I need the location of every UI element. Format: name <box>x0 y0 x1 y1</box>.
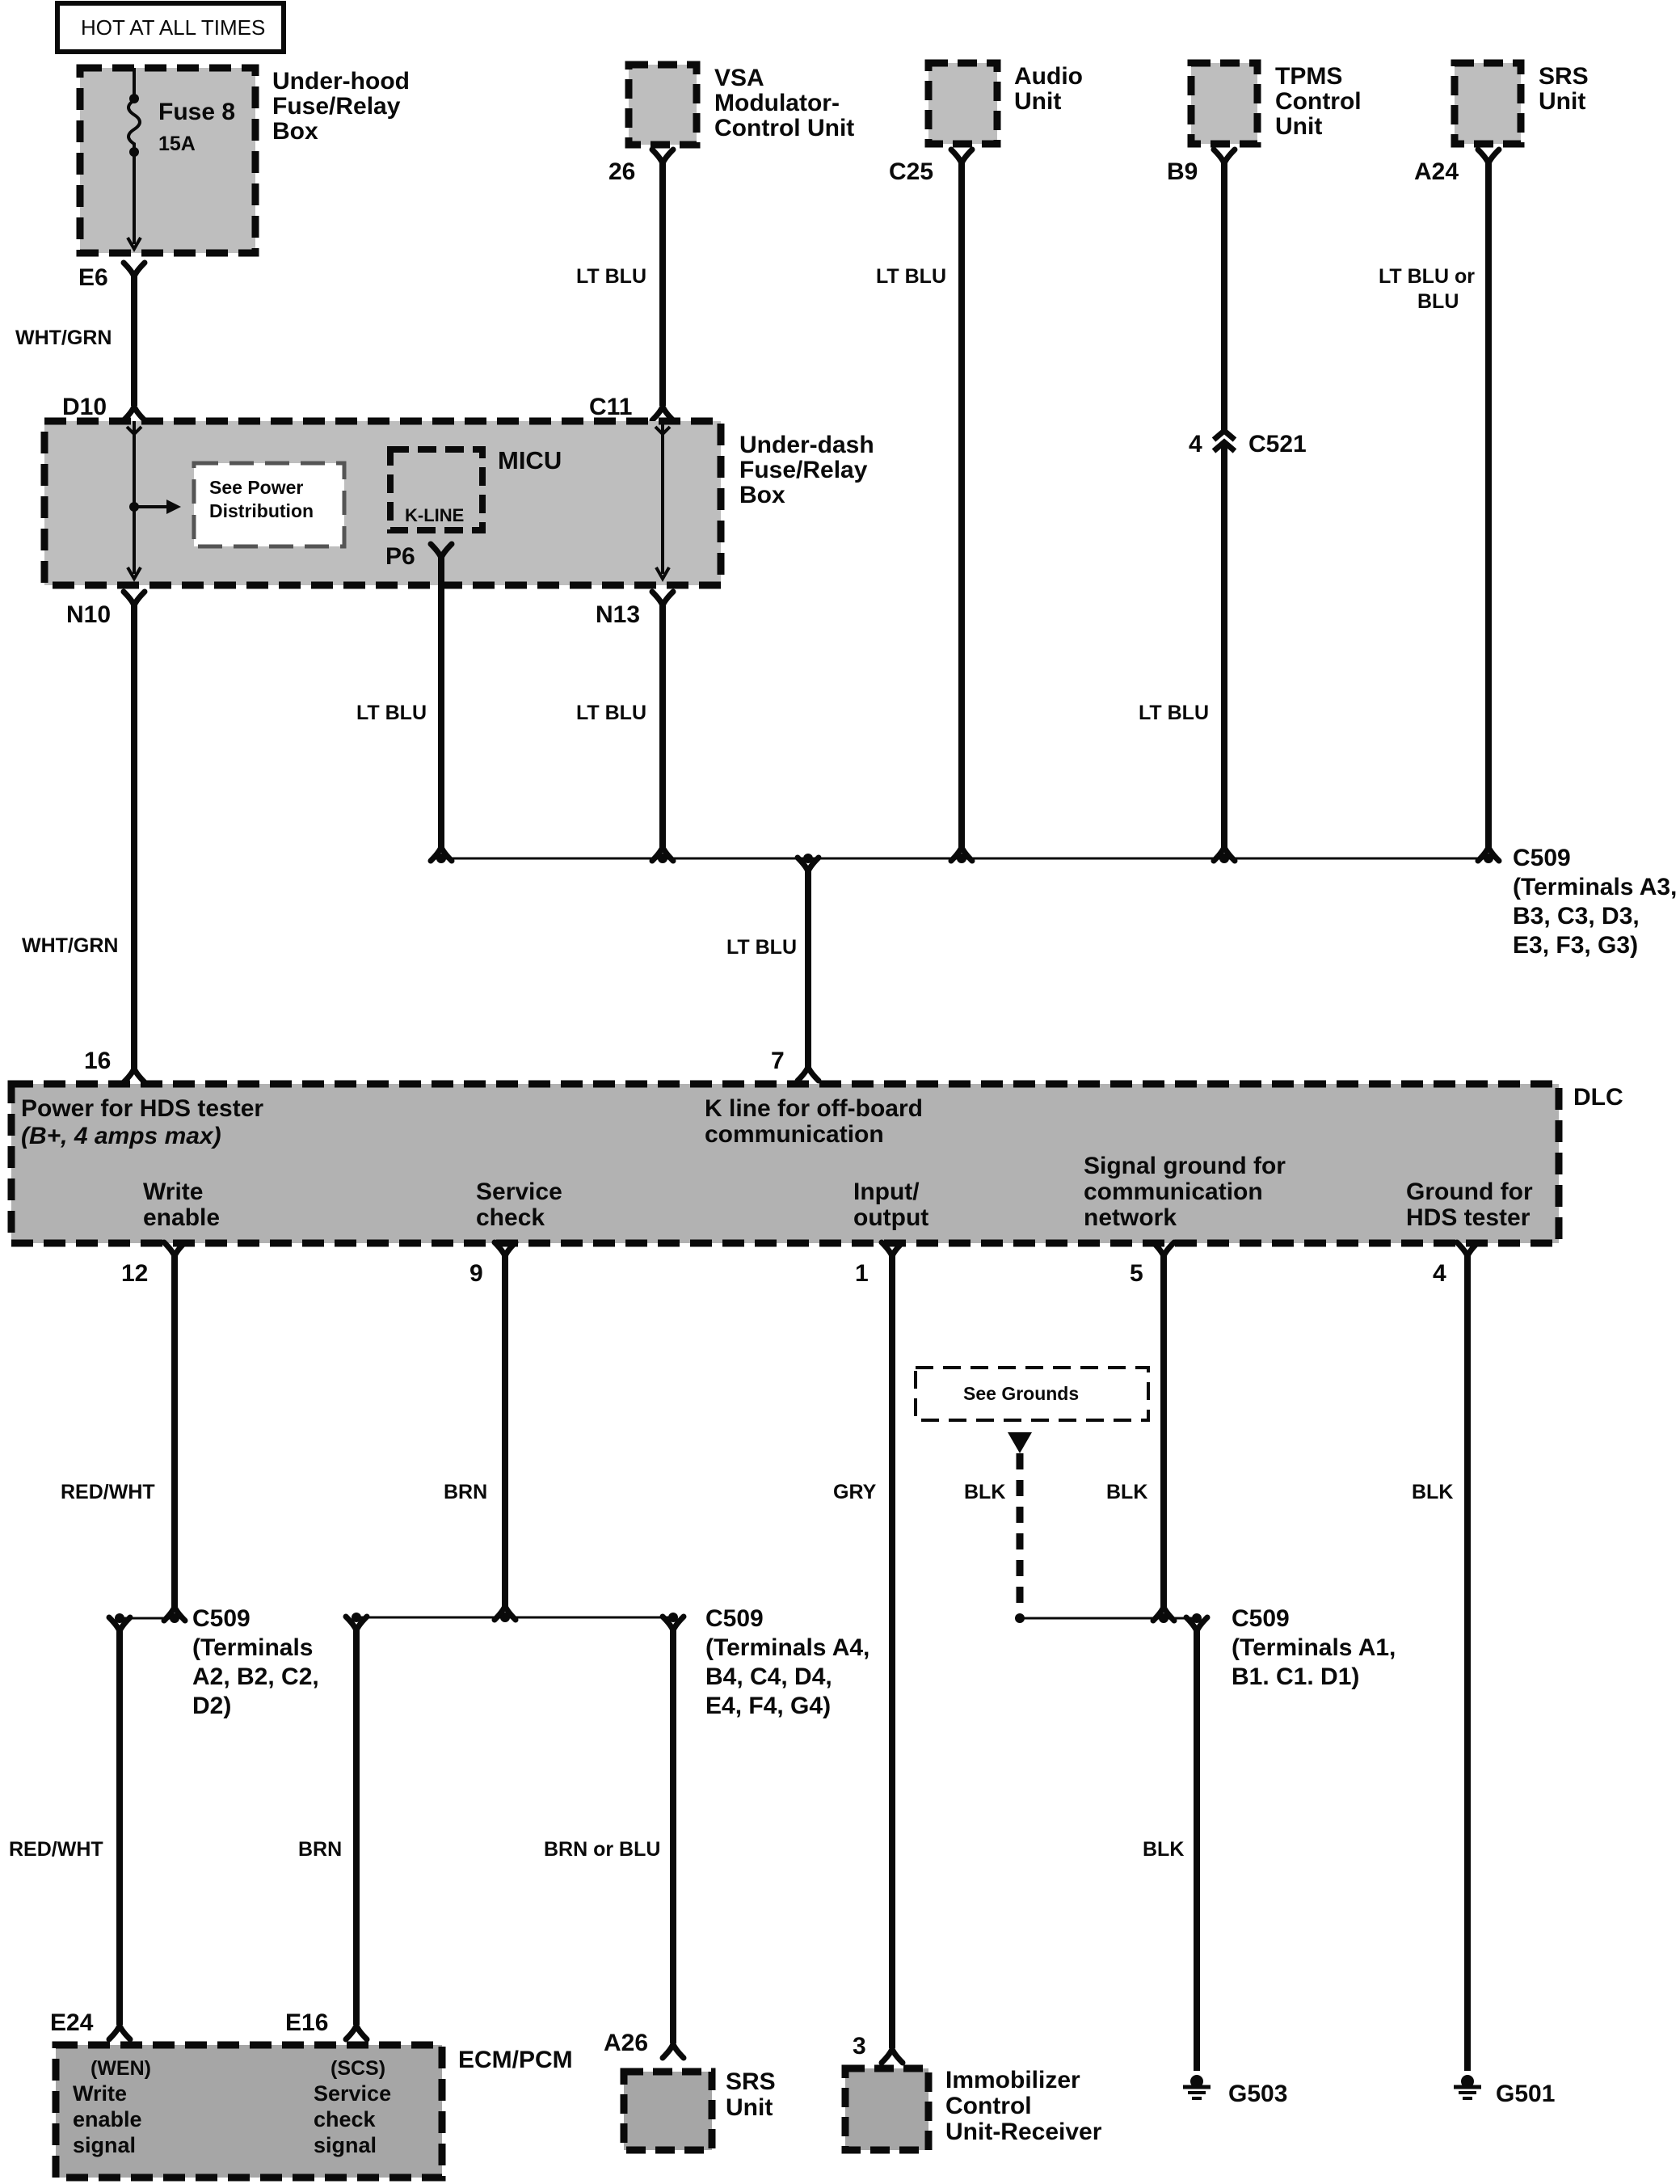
svg-text:Ground for: Ground for <box>1406 1178 1533 1205</box>
svg-text:BLK: BLK <box>1143 1838 1184 1861</box>
svg-text:(Terminals A1,: (Terminals A1, <box>1232 1634 1396 1661</box>
svg-text:DLC: DLC <box>1573 1084 1623 1111</box>
svg-text:See Power: See Power <box>209 477 303 498</box>
svg-text:Modulator-: Modulator- <box>714 90 840 116</box>
svg-text:signal: signal <box>73 2133 136 2157</box>
svg-text:Unit-Receiver: Unit-Receiver <box>945 2119 1102 2145</box>
svg-text:Service: Service <box>476 1178 562 1205</box>
svg-text:E4, F4, G4): E4, F4, G4) <box>705 1693 831 1719</box>
svg-text:network: network <box>1084 1204 1177 1231</box>
svg-text:Write: Write <box>143 1178 203 1205</box>
svg-text:C509: C509 <box>192 1605 251 1632</box>
svg-text:signal: signal <box>314 2133 377 2157</box>
svg-text:MICU: MICU <box>498 446 562 474</box>
svg-text:(SCS): (SCS) <box>331 2057 385 2080</box>
svg-text:C25: C25 <box>889 158 933 185</box>
svg-text:Control: Control <box>1275 88 1362 115</box>
svg-text:HOT AT ALL TIMES: HOT AT ALL TIMES <box>81 15 265 40</box>
svg-text:D2): D2) <box>192 1693 231 1719</box>
svg-text:check: check <box>314 2107 377 2131</box>
svg-text:12: 12 <box>121 1260 148 1287</box>
svg-text:SRS: SRS <box>726 2068 776 2095</box>
svg-text:LT BLU: LT BLU <box>876 265 946 288</box>
svg-text:C509: C509 <box>1513 845 1571 871</box>
svg-text:(Terminals: (Terminals <box>192 1634 314 1661</box>
svg-text:D10: D10 <box>62 394 107 420</box>
svg-text:(WEN): (WEN) <box>91 2057 151 2080</box>
svg-text:15A: 15A <box>158 133 196 155</box>
svg-text:1: 1 <box>855 1260 869 1287</box>
svg-text:LT BLU: LT BLU <box>726 936 797 959</box>
svg-text:BRN: BRN <box>298 1838 342 1861</box>
svg-text:C509: C509 <box>705 1605 764 1632</box>
svg-text:WHT/GRN: WHT/GRN <box>22 934 118 957</box>
svg-text:Service: Service <box>314 2081 391 2106</box>
svg-text:K line for off-board: K line for off-board <box>705 1095 923 1122</box>
svg-text:VSA: VSA <box>714 65 764 91</box>
svg-text:BLU: BLU <box>1417 290 1459 313</box>
svg-text:E3, F3, G3): E3, F3, G3) <box>1513 932 1638 959</box>
svg-text:Fuse/Relay: Fuse/Relay <box>272 93 401 120</box>
svg-text:Unit: Unit <box>1539 88 1585 115</box>
svg-text:output: output <box>853 1204 928 1231</box>
svg-text:HDS tester: HDS tester <box>1406 1204 1531 1231</box>
svg-text:Input/: Input/ <box>853 1178 920 1205</box>
svg-text:Control Unit: Control Unit <box>714 115 854 141</box>
svg-text:WHT/GRN: WHT/GRN <box>15 327 112 349</box>
svg-text:C11: C11 <box>589 394 632 420</box>
svg-text:26: 26 <box>608 158 635 185</box>
svg-text:LT BLU: LT BLU <box>356 702 427 724</box>
svg-text:(Terminals A4,: (Terminals A4, <box>705 1634 869 1661</box>
svg-text:B9: B9 <box>1167 158 1198 185</box>
svg-text:P6: P6 <box>385 543 415 570</box>
svg-text:Unit: Unit <box>1014 88 1061 115</box>
svg-text:E16: E16 <box>285 2009 328 2036</box>
svg-text:E24: E24 <box>50 2009 94 2036</box>
svg-text:A2, B2, C2,: A2, B2, C2, <box>192 1663 319 1690</box>
svg-text:Box: Box <box>739 482 785 508</box>
svg-text:A26: A26 <box>604 2030 648 2056</box>
svg-text:9: 9 <box>469 1260 483 1287</box>
svg-text:Signal ground for: Signal ground for <box>1084 1153 1286 1179</box>
svg-text:BLK: BLK <box>1106 1481 1147 1503</box>
svg-text:5: 5 <box>1130 1260 1143 1287</box>
svg-text:E6: E6 <box>78 264 108 291</box>
svg-text:Control: Control <box>945 2093 1032 2119</box>
svg-text:Write: Write <box>73 2081 127 2106</box>
svg-text:ECM/PCM: ECM/PCM <box>458 2047 573 2073</box>
svg-text:B1. C1. D1): B1. C1. D1) <box>1232 1663 1359 1690</box>
svg-text:RED/WHT: RED/WHT <box>61 1481 155 1503</box>
svg-text:Fuse/Relay: Fuse/Relay <box>739 457 868 483</box>
svg-text:N10: N10 <box>66 601 111 628</box>
svg-text:Distribution: Distribution <box>209 500 314 521</box>
svg-text:GRY: GRY <box>833 1481 877 1503</box>
svg-text:16: 16 <box>84 1048 111 1074</box>
svg-text:Audio: Audio <box>1014 63 1083 90</box>
svg-text:4: 4 <box>1189 431 1202 457</box>
svg-text:BRN or BLU: BRN or BLU <box>544 1838 660 1861</box>
svg-text:LT BLU: LT BLU <box>1139 702 1209 724</box>
svg-text:RED/WHT: RED/WHT <box>9 1838 103 1861</box>
svg-text:Power for HDS tester: Power for HDS tester <box>21 1095 263 1122</box>
svg-text:3: 3 <box>853 2033 866 2060</box>
svg-text:C509: C509 <box>1232 1605 1290 1632</box>
svg-text:7: 7 <box>771 1048 785 1074</box>
svg-text:(B+, 4 amps max): (B+, 4 amps max) <box>21 1123 221 1149</box>
svg-text:Fuse 8: Fuse 8 <box>158 99 235 125</box>
svg-text:TPMS: TPMS <box>1275 63 1342 90</box>
svg-text:Under-hood: Under-hood <box>272 68 410 95</box>
svg-text:BRN: BRN <box>444 1481 487 1503</box>
svg-text:LT BLU or: LT BLU or <box>1379 265 1475 288</box>
svg-text:G501: G501 <box>1496 2081 1555 2107</box>
svg-text:K-LINE: K-LINE <box>405 505 464 525</box>
svg-text:4: 4 <box>1433 1260 1446 1287</box>
svg-text:communication: communication <box>705 1121 884 1148</box>
svg-text:Box: Box <box>272 118 318 145</box>
svg-text:BLK: BLK <box>1412 1481 1453 1503</box>
svg-text:See Grounds: See Grounds <box>963 1383 1079 1404</box>
svg-text:LT BLU: LT BLU <box>576 702 646 724</box>
svg-text:G503: G503 <box>1228 2081 1287 2107</box>
svg-text:Unit: Unit <box>1275 113 1322 140</box>
svg-text:SRS: SRS <box>1539 63 1589 90</box>
svg-text:enable: enable <box>73 2107 142 2131</box>
svg-text:N13: N13 <box>596 601 640 628</box>
svg-text:Unit: Unit <box>726 2094 773 2121</box>
svg-text:Immobilizer: Immobilizer <box>945 2067 1080 2093</box>
svg-text:BLK: BLK <box>964 1481 1005 1503</box>
svg-text:(Terminals A3,: (Terminals A3, <box>1513 874 1677 900</box>
svg-text:Under-dash: Under-dash <box>739 432 874 458</box>
svg-text:C521: C521 <box>1248 431 1307 457</box>
svg-text:B4, C4, D4,: B4, C4, D4, <box>705 1663 832 1690</box>
svg-text:LT BLU: LT BLU <box>576 265 646 288</box>
svg-text:B3, C3, D3,: B3, C3, D3, <box>1513 903 1640 930</box>
svg-text:A24: A24 <box>1414 158 1459 185</box>
svg-text:communication: communication <box>1084 1178 1263 1205</box>
svg-text:check: check <box>476 1204 545 1231</box>
svg-text:enable: enable <box>143 1204 220 1231</box>
